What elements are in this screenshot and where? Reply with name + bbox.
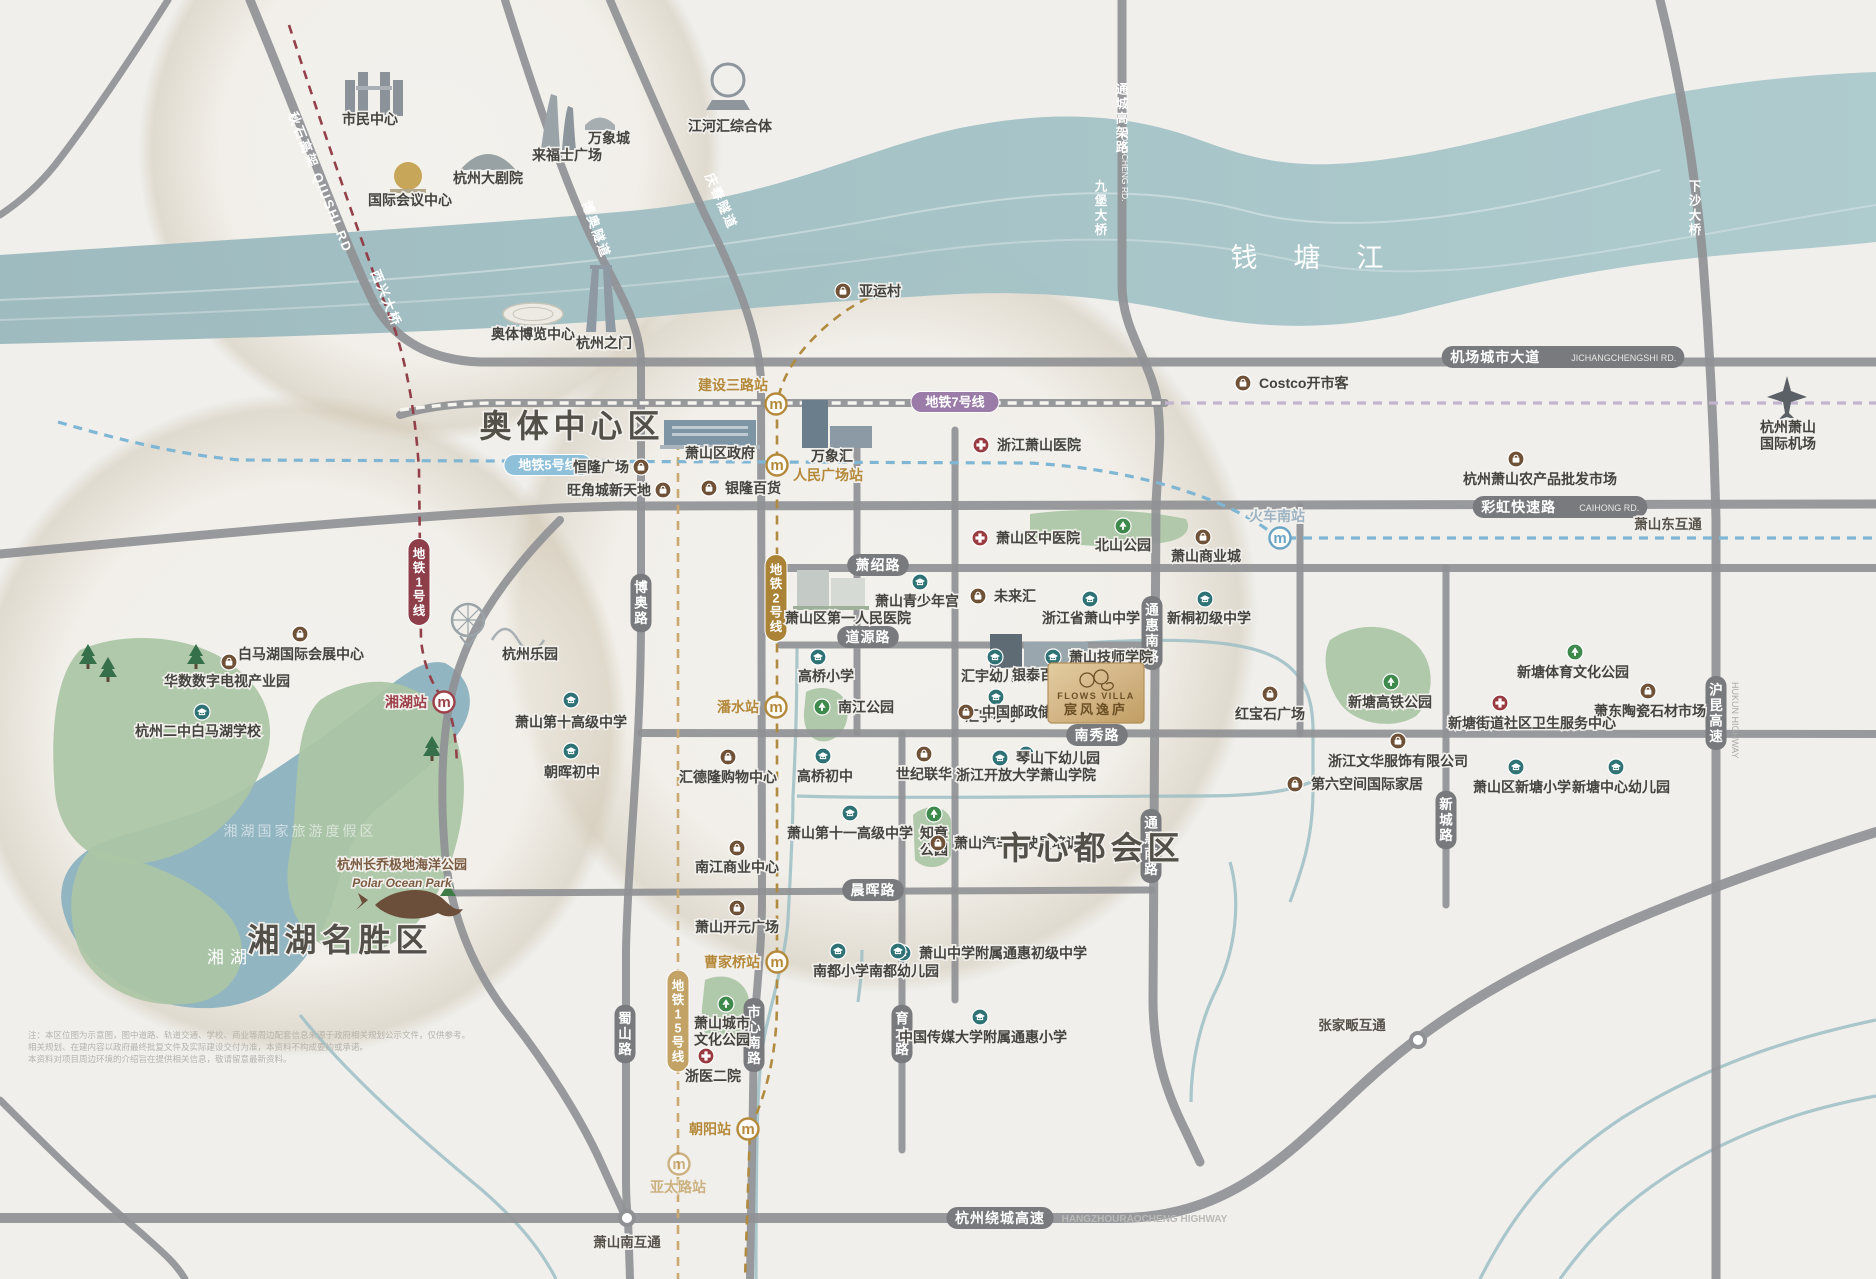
shopping-icon <box>958 704 974 720</box>
poi-label: 浙江萧山医院 <box>997 437 1081 453</box>
poi: 杭州萧山国际机场 <box>1760 419 1816 452</box>
poi-label: 萧山区新塘小学 <box>1473 779 1571 795</box>
poi: 恒隆广场 <box>573 459 649 475</box>
metro-station: m曹家桥站 <box>704 952 788 973</box>
region-label: 钱塘江 <box>1231 243 1420 273</box>
road-badge: 九堡大桥 <box>1094 179 1108 238</box>
shopping-icon <box>930 835 946 851</box>
poi: 萧山区政府 <box>685 445 755 461</box>
location-map: 萧绍路道源路南秀路晨晖路市心南路育才路蜀山路博奥路通惠南路通惠南路新城路沪昆高速… <box>0 0 1876 1279</box>
poi-label: 中国传媒大学附属通惠小学 <box>899 1029 1067 1045</box>
metro-station-label: 湘湖站 <box>385 694 427 710</box>
svg-text:晨晖路: 晨晖路 <box>851 882 896 898</box>
metro-station-label: 建设三路站 <box>698 377 768 393</box>
shopping-icon <box>655 482 671 498</box>
svg-text:机场城市大道: 机场城市大道 <box>1450 349 1540 365</box>
svg-text:m: m <box>770 457 783 474</box>
svg-text:HUKUN HIGHWAY: HUKUN HIGHWAY <box>1730 682 1740 759</box>
poi: 万象汇 <box>810 448 853 464</box>
poi-label: 北山公园 <box>1095 537 1151 553</box>
poi-label: 萧山第十高级中学 <box>515 714 627 730</box>
road-badge: 下沙大桥 <box>1689 180 1702 238</box>
metro-station: m亚太路站 <box>650 1154 706 1196</box>
disclaimer-line: 注：本区位图为示意图，图中道路、轨道交通、学校、商业等周边配套信息来源于政府相关… <box>28 1030 470 1040</box>
poi-label: 杭州二中白马湖学校 <box>135 723 262 739</box>
shopping-icon <box>970 588 986 604</box>
shopping-icon <box>221 654 237 670</box>
metro-line-badge: 地铁2号线 <box>765 555 787 642</box>
poi: 萧山区新塘小学 <box>1473 759 1571 795</box>
road-badge: 彩虹快速路CAIHONG RD. <box>1473 496 1648 518</box>
road-badge: 张家畈互通 <box>1318 1017 1386 1033</box>
poi-label: 世纪联华 <box>896 766 952 782</box>
shopping-icon <box>1640 683 1656 699</box>
interchange-dot <box>1411 1033 1425 1047</box>
svg-text:CAIHONG RD.: CAIHONG RD. <box>1579 503 1639 513</box>
school-icon <box>1508 759 1524 775</box>
school-icon <box>987 649 1003 665</box>
road-badge: 萧山南互通 <box>593 1234 661 1250</box>
svg-text:m: m <box>769 396 782 413</box>
road-badge: 博奥路 <box>631 574 652 633</box>
poi-label: 萧山开元广场 <box>695 919 779 935</box>
region-label: 市心都会区 <box>999 830 1184 866</box>
hospital-icon <box>1492 695 1508 711</box>
svg-text:m: m <box>672 1156 685 1173</box>
metro-line-badge: 地铁15号线 <box>667 970 689 1072</box>
metro-station-label: 人民广场站 <box>793 467 863 483</box>
poi-label: 浙江文华服饰有限公司 <box>1328 753 1468 769</box>
road-badge: 蜀山路 <box>615 1005 636 1064</box>
shopping-icon <box>729 840 745 856</box>
poi-label: 南都小学 <box>813 963 869 979</box>
park-icon <box>1567 644 1583 660</box>
poi-label: 万象汇 <box>810 448 853 464</box>
poi-label: 恒隆广场 <box>573 459 629 475</box>
poi-label: 市民中心 <box>342 111 398 127</box>
school-icon <box>563 692 579 708</box>
poi: Polar Ocean Park <box>352 876 453 890</box>
svg-text:蜀山路: 蜀山路 <box>618 1011 632 1057</box>
svg-text:TONGCHENG RD.: TONGCHENG RD. <box>1120 129 1130 201</box>
poi: 新塘中心幼儿园 <box>1572 759 1670 795</box>
poi-label: 朝晖初中 <box>544 764 600 780</box>
shopping-icon <box>916 746 932 762</box>
road-badge: 萧山东互通 <box>1634 516 1702 532</box>
poi: 万象城 <box>587 130 630 146</box>
svg-text:沪昆高速: 沪昆高速 <box>1709 681 1723 744</box>
stream <box>1191 862 1236 1102</box>
metro-station-label: 潘水站 <box>717 699 759 715</box>
poi: 南江公园 <box>814 699 894 715</box>
poi-label: Polar Ocean Park <box>352 876 453 890</box>
svg-text:m: m <box>769 699 782 716</box>
poi-label: 南江商业中心 <box>695 859 779 875</box>
poi-label: 江河汇综合体 <box>688 118 773 134</box>
shopping-icon <box>1287 776 1303 792</box>
shopping-icon <box>1195 529 1211 545</box>
poi: 来福士广场 <box>531 147 602 163</box>
map-canvas: 萧绍路道源路南秀路晨晖路市心南路育才路蜀山路博奥路通惠南路通惠南路新城路沪昆高速… <box>0 0 1876 1279</box>
school-icon <box>1082 591 1098 607</box>
school-icon <box>992 750 1008 766</box>
poi: 杭州乐园 <box>502 646 558 662</box>
road <box>450 890 1152 893</box>
disclaimer-line: 本资料对项目周边环境的介绍旨在提供相关信息，敬请留意最新资料。 <box>28 1054 292 1064</box>
school-icon <box>1608 759 1624 775</box>
interchange-dot <box>620 1211 634 1225</box>
school-icon <box>1197 591 1213 607</box>
region-label: 湘湖 <box>207 948 253 967</box>
poi-label: 新塘街道社区卫生服务中心 <box>1448 715 1616 731</box>
poi-label: 萧山城市文化公园 <box>694 1015 750 1048</box>
park-icon <box>1115 518 1131 534</box>
svg-text:张家畈互通: 张家畈互通 <box>1318 1017 1386 1033</box>
school-icon <box>815 748 831 764</box>
road-badge: 沪昆高速HUKUN HIGHWAY <box>1706 676 1741 759</box>
poi-label: 新塘高铁公园 <box>1348 694 1432 710</box>
poi-label: 浙医二院 <box>685 1068 741 1084</box>
poi-label: 南江公园 <box>838 699 894 715</box>
poi-label: Costco开市客 <box>1259 375 1349 391</box>
metro-line-badge: 地铁7号线 <box>911 392 999 413</box>
school-icon <box>972 1009 988 1025</box>
poi-label: 国际会议中心 <box>368 192 452 208</box>
road <box>641 733 1876 734</box>
poi-label: 汇德隆购物中心 <box>679 769 777 785</box>
shopping-icon <box>633 459 649 475</box>
poi: 亚运村 <box>835 283 901 299</box>
poi: 未来汇 <box>970 588 1036 604</box>
poi-label: 南都幼儿园 <box>869 963 939 979</box>
road-badge: 新城路 <box>1436 791 1457 850</box>
svg-text:道源路: 道源路 <box>846 629 891 645</box>
poi-label: 萧山区第一人民医院 <box>785 610 911 626</box>
poi-label: 第六空间国际家居 <box>1311 776 1423 792</box>
poi: 杭州之门 <box>576 335 632 351</box>
school-icon <box>830 943 846 959</box>
poi-label: 浙江开放大学萧山学院 <box>956 767 1096 783</box>
metro-station: m湘湖站 <box>385 692 455 713</box>
poi: 市民中心 <box>342 111 398 127</box>
poi-label: 奥体博览中心 <box>491 326 575 342</box>
svg-text:m: m <box>741 1121 754 1138</box>
shopping-icon <box>1235 375 1251 391</box>
stream <box>1480 1020 1876 1279</box>
poi: 杭州大剧院 <box>453 170 523 186</box>
airplane-icon <box>1767 376 1807 420</box>
svg-text:m: m <box>1273 530 1286 547</box>
rivermall-ring <box>706 64 750 110</box>
poi-label: 旺角城新天地 <box>567 482 651 498</box>
poi-label: 萧山区中医院 <box>996 530 1080 546</box>
hospital-icon <box>698 1048 714 1064</box>
poi: 新塘街道社区卫生服务中心 <box>1448 695 1616 731</box>
park-icon <box>926 806 942 822</box>
poi: 杭州长乔极地海洋公园 <box>337 857 467 872</box>
poi-label: 高桥小学 <box>798 668 854 684</box>
shopping-icon <box>1390 733 1406 749</box>
poi-label: 琴山下幼儿园 <box>1016 750 1100 766</box>
road <box>0 1100 185 1279</box>
metro-station-label: 曹家桥站 <box>704 954 760 970</box>
road-badge: 南秀路 <box>1066 724 1128 746</box>
road-badge: 萧绍路 <box>847 554 909 576</box>
shopping-icon <box>1508 451 1524 467</box>
property-name-zh: 宸风逸庐 <box>1064 702 1128 717</box>
poi-label: 杭州之门 <box>576 335 632 351</box>
svg-text:m: m <box>437 694 450 711</box>
school-icon <box>194 704 210 720</box>
svg-text:HANGZHOURAOCHENG HIGHWAY: HANGZHOURAOCHENG HIGHWAY <box>1062 1214 1228 1225</box>
poi-label: 白马湖国际会展中心 <box>238 646 364 662</box>
poi: 萧山中学附属通惠初级中学 <box>895 945 1087 961</box>
poi-label: 来福士广场 <box>531 147 602 163</box>
hospital-icon <box>973 437 989 453</box>
school-icon <box>912 574 928 590</box>
poi-label: 银隆百货 <box>725 480 781 496</box>
shopping-icon <box>1262 686 1278 702</box>
poi-label: 杭州萧山国际机场 <box>1760 419 1816 452</box>
poi-label: 杭州长乔极地海洋公园 <box>337 857 467 872</box>
poi: 杭州萧山农产品批发市场 <box>1463 451 1617 487</box>
school-icon <box>810 649 826 665</box>
svg-text:新城路: 新城路 <box>1439 796 1453 843</box>
road-badge: 道源路 <box>837 626 899 648</box>
poi: 银隆百货 <box>701 480 781 496</box>
region-label: 奥体中心区 <box>479 408 664 444</box>
poi-label: 萧山青少年宫 <box>875 593 959 609</box>
poi-label: 萧山商业城 <box>1171 548 1241 564</box>
svg-text:JICHANGCHENGSHI RD.: JICHANGCHENGSHI RD. <box>1571 353 1676 363</box>
park-icon <box>814 699 830 715</box>
svg-text:南秀路: 南秀路 <box>1075 727 1120 743</box>
school-icon <box>988 689 1004 705</box>
metro-station: m朝阳站 <box>689 1119 759 1140</box>
school-icon <box>842 805 858 821</box>
shopping-icon <box>701 480 717 496</box>
shopping-icon <box>835 283 851 299</box>
svg-text:地铁5号线: 地铁5号线 <box>518 458 577 473</box>
poi-label: 新塘体育文化公园 <box>1517 664 1629 680</box>
shopping-icon <box>720 749 736 765</box>
poi: 萧山区第一人民医院 <box>785 610 911 626</box>
metro-station-label: 火车南站 <box>1249 508 1305 524</box>
park-icon <box>718 996 734 1012</box>
poi: 浙医二院 <box>685 1048 741 1084</box>
metro-station: m潘水站 <box>717 697 787 718</box>
hospital-icon <box>972 530 988 546</box>
property-plaque: FLOWS VILLA宸风逸庐 <box>1048 663 1144 723</box>
school-icon <box>890 943 906 959</box>
svg-text:下沙大桥: 下沙大桥 <box>1689 180 1702 238</box>
disclaimer-line: 相关规划、在建内容以政府最终批复文件及实际建设交付为准，本资料不构成要约或承诺。 <box>28 1042 368 1052</box>
road-badge: 机场城市大道JICHANGCHENGSHI RD. <box>1442 346 1685 368</box>
shopping-icon <box>292 626 308 642</box>
svg-text:萧山东互通: 萧山东互通 <box>1634 516 1702 532</box>
svg-text:杭州绕城高速: 杭州绕城高速 <box>955 1210 1045 1226</box>
poi-label: 杭州乐园 <box>502 646 558 662</box>
svg-text:地铁7号线: 地铁7号线 <box>925 395 984 410</box>
stream <box>300 1015 556 1279</box>
poi: 江河汇综合体 <box>688 118 773 134</box>
poi-label: 浙江省萧山中学 <box>1042 610 1140 626</box>
poi-label: 杭州大剧院 <box>453 170 523 186</box>
region-label: 湘湖国家旅游度假区 <box>224 823 377 839</box>
poi: Costco开市客 <box>1235 375 1349 391</box>
svg-text:博奥路: 博奥路 <box>634 579 648 626</box>
region-label: 湘湖名胜区 <box>247 922 432 958</box>
poi-label: 万象城 <box>587 130 630 146</box>
poi-label: 红宝石广场 <box>1235 706 1305 722</box>
poi: 新塘体育文化公园 <box>1517 644 1629 680</box>
metro-line-badge: 地铁1号线 <box>408 539 430 626</box>
park-icon <box>1383 674 1399 690</box>
expo-stadium <box>503 303 563 325</box>
svg-text:萧山南互通: 萧山南互通 <box>593 1234 661 1250</box>
poi-label: 杭州萧山农产品批发市场 <box>1463 471 1617 487</box>
poi-label: 亚运村 <box>859 283 901 299</box>
road-badge: 晨晖路 <box>842 879 904 901</box>
poi: 中国传媒大学附属通惠小学 <box>899 1009 1067 1045</box>
svg-text:彩虹快速路: 彩虹快速路 <box>1480 499 1556 515</box>
poi-label: 萧山中学附属通惠初级中学 <box>919 945 1087 961</box>
metro-station-label: 亚太路站 <box>650 1179 706 1195</box>
shopping-icon <box>729 900 745 916</box>
school-icon <box>563 743 579 759</box>
poi: 萧东陶瓷石材市场 <box>1594 683 1706 719</box>
property-name-en: FLOWS VILLA <box>1057 691 1135 701</box>
poi-label: 未来汇 <box>994 588 1036 604</box>
svg-text:m: m <box>770 954 783 971</box>
svg-text:九堡大桥: 九堡大桥 <box>1094 179 1108 238</box>
poi-label: 华数数字电视产业园 <box>164 673 290 689</box>
poi-label: 新桐初级中学 <box>1167 610 1251 626</box>
poi-label: 萧山区政府 <box>685 445 755 461</box>
metro-station-label: 朝阳站 <box>689 1121 731 1137</box>
poi: 奥体博览中心 <box>491 326 575 342</box>
poi-label: 萧山第十一高级中学 <box>787 825 913 841</box>
poi: 国际会议中心 <box>368 192 452 208</box>
poi-label: 新塘中心幼儿园 <box>1572 779 1670 795</box>
svg-text:萧绍路: 萧绍路 <box>856 557 901 573</box>
poi-label: 高桥初中 <box>797 768 853 784</box>
